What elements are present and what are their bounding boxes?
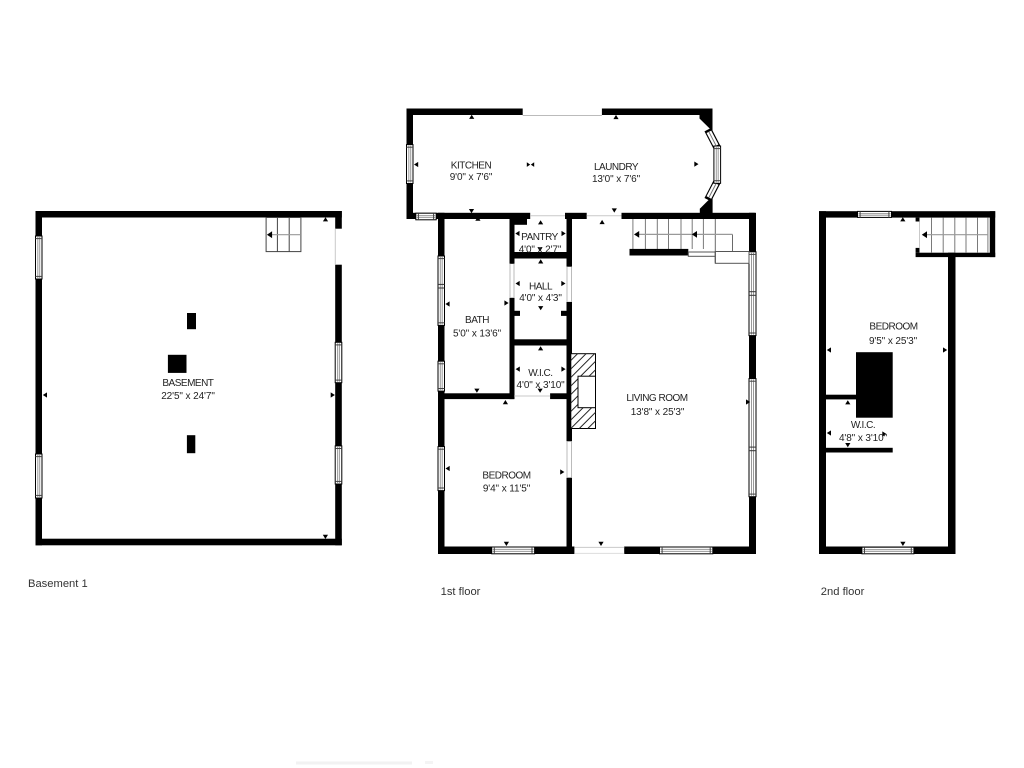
svg-text:1st floor: 1st floor: [441, 586, 481, 598]
svg-text:PANTRY: PANTRY: [521, 232, 558, 243]
svg-text:4'0" x 3'10": 4'0" x 3'10": [517, 380, 566, 391]
svg-text:LIVING ROOM: LIVING ROOM: [626, 393, 687, 404]
svg-text:4'0" x 2'7": 4'0" x 2'7": [519, 245, 562, 256]
svg-text:W.I.C.: W.I.C.: [851, 420, 875, 431]
svg-text:22'5" x 24'7": 22'5" x 24'7": [161, 391, 215, 402]
svg-text:9'4" x 11'5": 9'4" x 11'5": [483, 483, 531, 494]
svg-text:5'0" x 13'6": 5'0" x 13'6": [453, 329, 502, 340]
svg-text:W.I.C.: W.I.C.: [528, 368, 552, 379]
svg-text:9'5" x 25'3": 9'5" x 25'3": [869, 336, 918, 347]
svg-text:BATH: BATH: [465, 315, 489, 326]
svg-text:LAUNDRY: LAUNDRY: [594, 162, 639, 173]
svg-text:HALL: HALL: [529, 281, 553, 292]
svg-text:4'8" x 3'10": 4'8" x 3'10": [839, 433, 888, 444]
svg-text:BEDROOM: BEDROOM: [869, 322, 917, 333]
svg-text:4'0" x 4'3": 4'0" x 4'3": [519, 293, 562, 304]
svg-text:13'8" x 25'3": 13'8" x 25'3": [631, 407, 685, 418]
svg-text:13'0" x 7'6": 13'0" x 7'6": [592, 174, 641, 185]
svg-text:BASEMENT: BASEMENT: [162, 378, 213, 389]
svg-text:KITCHEN: KITCHEN: [451, 160, 492, 171]
svg-text:Basement 1: Basement 1: [28, 578, 88, 590]
svg-text:9'0" x 7'6": 9'0" x 7'6": [450, 172, 493, 183]
svg-text:2nd floor: 2nd floor: [821, 586, 865, 598]
svg-text:BEDROOM: BEDROOM: [482, 471, 530, 482]
